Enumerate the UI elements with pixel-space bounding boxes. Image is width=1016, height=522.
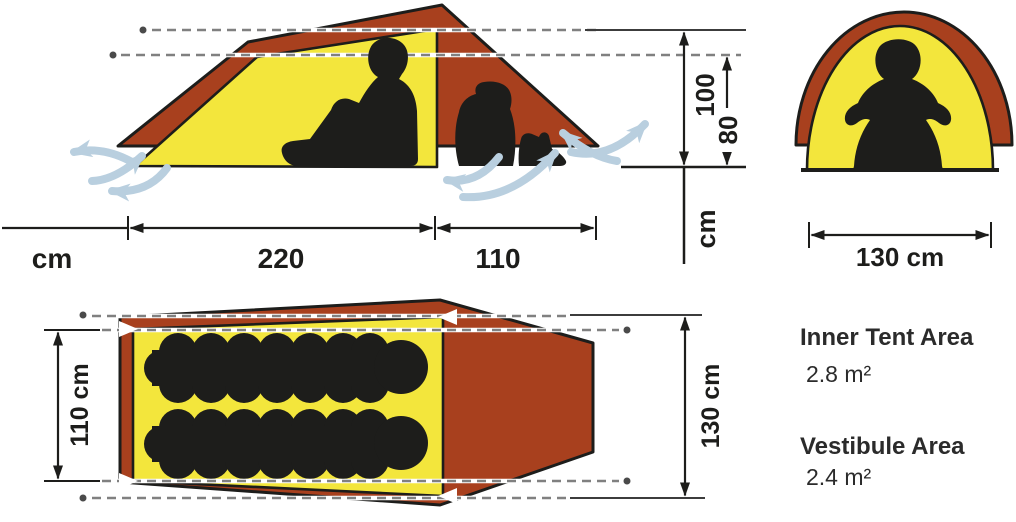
front-width-label: 130 cm: [856, 242, 944, 272]
inner-length-label: 220: [258, 243, 305, 274]
sleeping-bag-silhouette: [144, 409, 428, 479]
airflow-arrow-icon: [74, 150, 132, 162]
sleeping-bag-silhouette: [144, 333, 428, 403]
front-view: 130 cm: [796, 12, 1012, 272]
bottom-unit-label: cm: [32, 243, 72, 274]
guide-dot: [110, 52, 117, 59]
floor-plan: 110 cm 130 cm: [44, 300, 725, 505]
guide-dot: [80, 312, 87, 319]
plan-inner-width-label: 110 cm: [66, 363, 94, 446]
inner-area-value: 2.8 m²: [806, 361, 872, 387]
guide-dot: [624, 478, 631, 485]
area-summary: Inner Tent Area 2.8 m² Vestibule Area 2.…: [800, 324, 974, 490]
plan-outer-width-label: 130 cm: [697, 364, 725, 449]
height-unit-label: cm: [691, 209, 721, 248]
guide-dot: [140, 27, 147, 34]
guide-dot: [624, 327, 631, 334]
vestibule-area-title: Vestibule Area: [800, 433, 965, 460]
guide-dot: [80, 495, 87, 502]
inner-area-title: Inner Tent Area: [800, 324, 974, 351]
side-view: 100 80 cm cm 220 110: [2, 5, 746, 274]
diagram-canvas: 100 80 cm cm 220 110 130 cm: [0, 0, 1016, 522]
vestibule-area-value: 2.4 m²: [806, 464, 872, 490]
rear-height-label: 80: [713, 116, 743, 145]
tent-dimension-diagram: 100 80 cm cm 220 110 130 cm: [0, 0, 1016, 522]
vestibule-length-label: 110: [475, 243, 520, 274]
